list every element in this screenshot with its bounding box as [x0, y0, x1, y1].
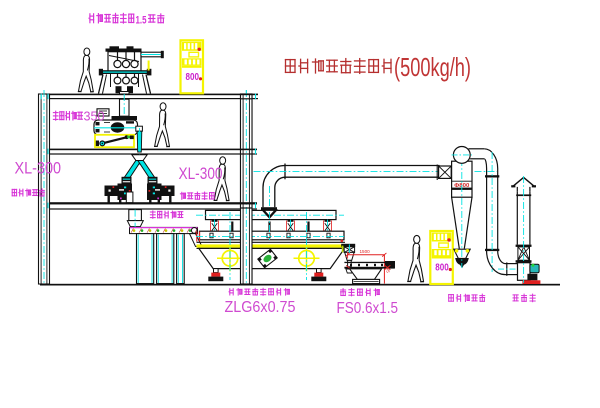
svg-text:350: 350 [84, 110, 105, 124]
svg-text:FS0.6x1.5: FS0.6x1.5 [337, 300, 399, 317]
svg-text:XL-300: XL-300 [179, 164, 223, 183]
svg-text:1.5: 1.5 [136, 15, 147, 27]
svg-text:XL-300: XL-300 [15, 159, 62, 178]
svg-text:(500kg/h): (500kg/h) [394, 52, 471, 82]
svg-text:1500: 1500 [360, 249, 371, 254]
svg-text:ZLG6x0.75: ZLG6x0.75 [225, 299, 296, 316]
